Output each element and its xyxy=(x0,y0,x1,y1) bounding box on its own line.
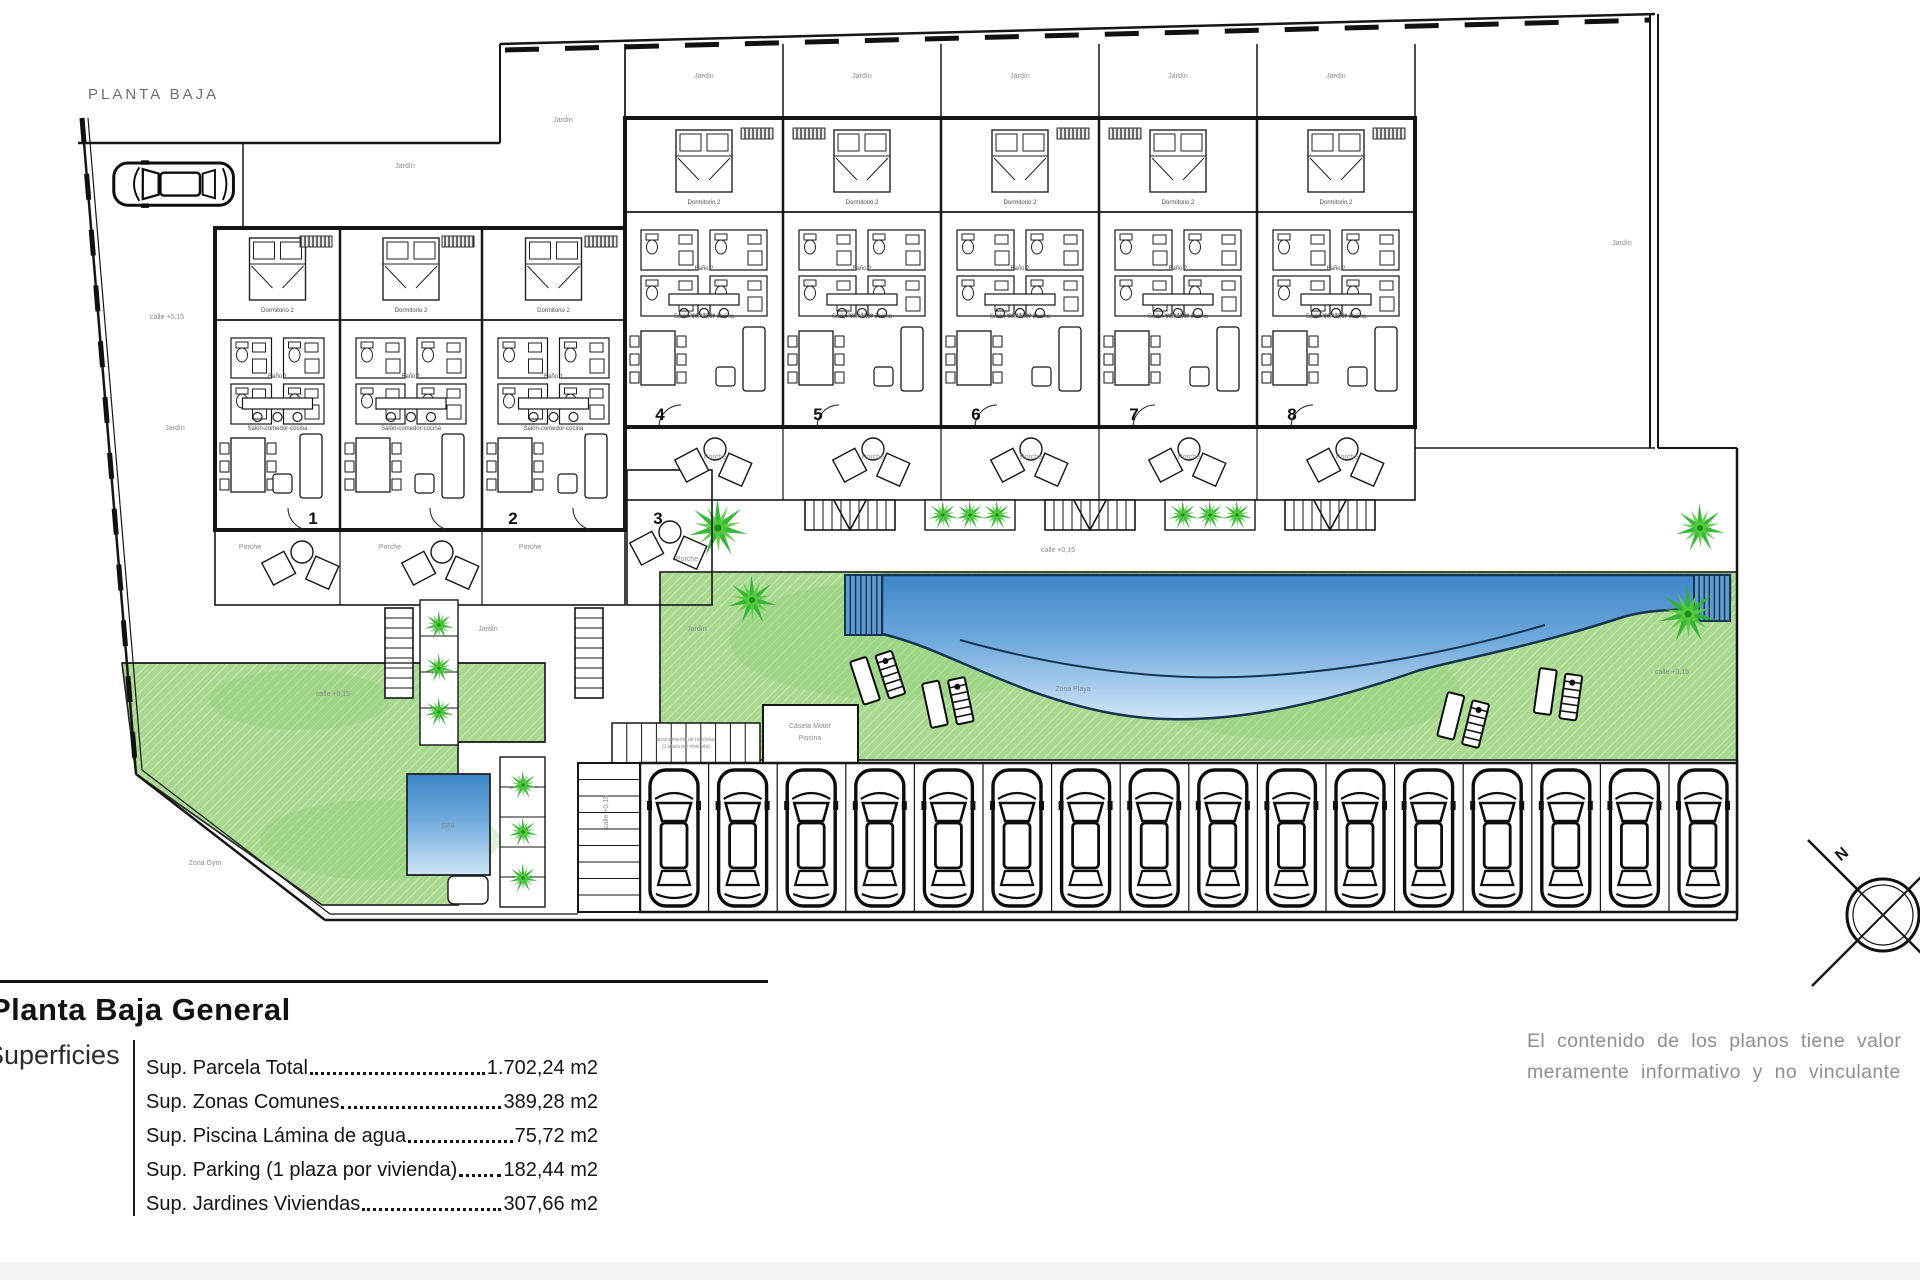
legend-section-superficies: Superficies xyxy=(0,1040,120,1071)
svg-text:Baño 2: Baño 2 xyxy=(852,266,872,272)
terrace-furniture-icon xyxy=(1149,438,1226,486)
stairs-icon xyxy=(385,608,413,698)
svg-text:Porche: Porche xyxy=(704,454,726,461)
car-icon xyxy=(1059,770,1113,906)
svg-text:Baño 2: Baño 2 xyxy=(1326,266,1346,272)
site-plan: N12345678JardínJardínJardínJardínJardínJ… xyxy=(0,0,1920,1010)
disclaimer-line2: meramente informativo y no vinculante xyxy=(1527,1057,1920,1088)
svg-text:Porche: Porche xyxy=(379,544,401,551)
svg-text:2: 2 xyxy=(508,509,517,528)
svg-text:Jardín: Jardín xyxy=(478,626,498,633)
car-icon xyxy=(1607,770,1661,906)
car-icon xyxy=(990,770,1044,906)
bathroom-icon xyxy=(231,338,272,378)
svg-text:Dormitorio 1: Dormitorio 1 xyxy=(688,313,721,319)
svg-text:Jardín: Jardín xyxy=(1168,73,1188,80)
svg-text:Jardín: Jardín xyxy=(395,163,415,170)
surface-row: Sup. Zonas Comunes 389,28 m2 xyxy=(146,1080,598,1114)
svg-text:Zona Playa: Zona Playa xyxy=(1055,686,1091,693)
svg-text:Porche: Porche xyxy=(1336,454,1358,461)
north-compass-icon: N xyxy=(1808,840,1920,990)
svg-text:4: 4 xyxy=(655,405,665,424)
car-icon xyxy=(921,770,975,906)
bathroom-icon xyxy=(1273,230,1330,270)
stairs-icon xyxy=(1285,500,1375,530)
svg-text:Baño 1: Baño 1 xyxy=(268,374,288,380)
svg-text:Salón-comedor-cocina: Salón-comedor-cocina xyxy=(247,426,308,432)
svg-text:Dormitorio 1: Dormitorio 1 xyxy=(846,313,879,319)
svg-text:Porche: Porche xyxy=(676,556,698,563)
svg-text:Jardín: Jardín xyxy=(687,626,707,633)
terrace-furniture-icon xyxy=(991,438,1068,486)
site-plan-svg: N12345678JardínJardínJardínJardínJardínJ… xyxy=(0,0,1920,1010)
svg-text:calle +0,15: calle +0,15 xyxy=(150,314,184,321)
car-icon xyxy=(647,770,701,906)
svg-text:Porche: Porche xyxy=(1178,454,1200,461)
bathroom-icon xyxy=(799,230,856,270)
bed-icon xyxy=(1150,130,1206,192)
dining-table-icon xyxy=(946,331,1002,385)
svg-text:calle +0,15: calle +0,15 xyxy=(1655,669,1689,676)
svg-text:Jardín: Jardín xyxy=(1612,240,1632,247)
disclaimer-line1: El contenido de los planos tiene valor xyxy=(1527,1026,1920,1057)
svg-text:Salón-comedor-cocina: Salón-comedor-cocina xyxy=(381,426,442,432)
car-icon xyxy=(1127,770,1181,906)
terrace-furniture-icon xyxy=(833,438,910,486)
legend-title: Planta Baja General xyxy=(0,992,291,1028)
page-footer-band xyxy=(0,1262,1920,1280)
svg-text:Baño 1: Baño 1 xyxy=(544,374,564,380)
bathroom-icon xyxy=(284,338,325,378)
terrace-furniture-icon xyxy=(402,541,479,589)
svg-text:7: 7 xyxy=(1129,405,1138,424)
svg-text:Jardín: Jardín xyxy=(852,73,872,80)
svg-text:8: 8 xyxy=(1287,405,1296,424)
svg-text:calle +0,15: calle +0,15 xyxy=(316,691,350,698)
bathroom-icon xyxy=(868,230,925,270)
bathroom-icon xyxy=(1184,230,1241,270)
stairs-icon xyxy=(805,500,895,530)
bathroom-icon xyxy=(1342,230,1399,270)
svg-text:Jardín: Jardín xyxy=(1326,73,1346,80)
svg-text:Porche: Porche xyxy=(239,544,261,551)
surface-row: Sup. Jardines Viviendas307,66 m2 xyxy=(146,1182,598,1216)
svg-text:Dormitorio 2: Dormitorio 2 xyxy=(846,200,879,206)
bathroom-icon xyxy=(1115,230,1172,270)
legend-divider xyxy=(0,980,768,983)
svg-text:Dormitorio 2: Dormitorio 2 xyxy=(537,308,570,314)
car-icon xyxy=(1333,770,1387,906)
svg-text:Jardín: Jardín xyxy=(1010,73,1030,80)
car-icon xyxy=(1539,770,1593,906)
bathroom-icon xyxy=(641,230,698,270)
bike-parking xyxy=(612,723,760,763)
surface-table: Sup. Parcela Total 1.702,24 m2Sup. Zonas… xyxy=(146,1046,598,1216)
svg-text:Dormitorio 1: Dormitorio 1 xyxy=(1004,313,1037,319)
dining-table-icon xyxy=(345,438,401,492)
svg-text:Dormitorio 1: Dormitorio 1 xyxy=(1162,313,1195,319)
car-icon xyxy=(1676,770,1730,906)
svg-text:Zona Gym: Zona Gym xyxy=(189,860,222,867)
svg-text:Dormitorio 2: Dormitorio 2 xyxy=(1004,200,1037,206)
car-icon xyxy=(784,770,838,906)
parking-area xyxy=(578,763,1737,912)
bed-icon xyxy=(1308,130,1364,192)
bed-icon xyxy=(250,238,306,300)
svg-text:Dormitorio 1: Dormitorio 1 xyxy=(1320,313,1353,319)
svg-text:Jardín: Jardín xyxy=(165,425,185,432)
svg-text:Porche: Porche xyxy=(1020,454,1042,461)
svg-text:Baño 1: Baño 1 xyxy=(401,374,421,380)
stairs-icon xyxy=(1045,500,1135,530)
svg-text:Baño 2: Baño 2 xyxy=(694,266,714,272)
dining-table-icon xyxy=(220,438,276,492)
dining-table-icon xyxy=(788,331,844,385)
dining-table-icon xyxy=(487,438,543,492)
svg-text:Piscina: Piscina xyxy=(799,735,822,742)
svg-text:calle +0,15: calle +0,15 xyxy=(603,795,610,829)
bathroom-icon xyxy=(957,230,1014,270)
page: { "plan": { "title": "PLANTA BAJA", "com… xyxy=(0,0,1920,1280)
car-icon xyxy=(853,770,907,906)
bathroom-icon xyxy=(1026,230,1083,270)
svg-text:Porche: Porche xyxy=(519,544,541,551)
dining-table-icon xyxy=(1262,331,1318,385)
svg-text:(1 plaza por vivienda): (1 plaza por vivienda) xyxy=(662,744,710,750)
car-icon xyxy=(1196,770,1250,906)
svg-text:Dormitorio 2: Dormitorio 2 xyxy=(688,200,721,206)
car-icon xyxy=(716,770,770,906)
dining-table-icon xyxy=(630,331,686,385)
svg-text:Salón-comedor-cocina: Salón-comedor-cocina xyxy=(523,426,584,432)
svg-text:calle +0,15: calle +0,15 xyxy=(1041,547,1075,554)
surface-row: Sup. Piscina Lámina de agua75,72 m2 xyxy=(146,1114,598,1148)
svg-text:3: 3 xyxy=(653,509,662,528)
svg-text:6: 6 xyxy=(971,405,980,424)
svg-text:Jardín: Jardín xyxy=(553,117,573,124)
svg-text:Porche: Porche xyxy=(862,454,884,461)
surface-row: Sup. Parking (1 plaza por vivienda)182,4… xyxy=(146,1148,598,1182)
svg-text:Dormitorio 2: Dormitorio 2 xyxy=(1162,200,1195,206)
bed-icon xyxy=(834,130,890,192)
bathroom-icon xyxy=(356,338,405,378)
bed-icon xyxy=(526,238,582,300)
terrace-furniture-icon xyxy=(262,541,339,589)
stairs-icon xyxy=(575,608,603,698)
bed-icon xyxy=(676,130,732,192)
bed-icon xyxy=(992,130,1048,192)
svg-text:1: 1 xyxy=(308,509,317,528)
terrace-furniture-icon xyxy=(675,438,752,486)
car-icon xyxy=(1264,770,1318,906)
bathroom-icon xyxy=(560,338,610,378)
svg-text:Baño 2: Baño 2 xyxy=(1010,266,1030,272)
legend-vertical-divider xyxy=(133,1040,135,1216)
bathroom-icon xyxy=(710,230,767,270)
svg-text:Dormitorio 2: Dormitorio 2 xyxy=(261,308,294,314)
car-icon xyxy=(1470,770,1524,906)
palm-tree-icon xyxy=(1676,503,1725,551)
svg-text:Dormitorio 2: Dormitorio 2 xyxy=(395,308,428,314)
car-icon xyxy=(1402,770,1456,906)
svg-text:Baño 2: Baño 2 xyxy=(1168,266,1188,272)
svg-text:Dormitorio 2: Dormitorio 2 xyxy=(1320,200,1353,206)
svg-text:5: 5 xyxy=(813,405,822,424)
svg-text:Caseta Motor: Caseta Motor xyxy=(789,723,832,730)
svg-text:aparcamiento de bicicletas: aparcamiento de bicicletas xyxy=(656,737,716,743)
surface-row: Sup. Parcela Total 1.702,24 m2 xyxy=(146,1046,598,1080)
terrace-furniture-icon xyxy=(1307,438,1384,486)
bathroom-icon xyxy=(498,338,548,378)
bed-icon xyxy=(383,238,439,300)
svg-text:SPA: SPA xyxy=(441,823,455,830)
svg-text:N: N xyxy=(1832,844,1852,864)
dining-table-icon xyxy=(1104,331,1160,385)
disclaimer-note: El contenido de los planos tiene valor m… xyxy=(1527,1026,1920,1088)
svg-text:Jardín: Jardín xyxy=(694,73,714,80)
bathroom-icon xyxy=(417,338,466,378)
car-icon xyxy=(114,160,234,208)
